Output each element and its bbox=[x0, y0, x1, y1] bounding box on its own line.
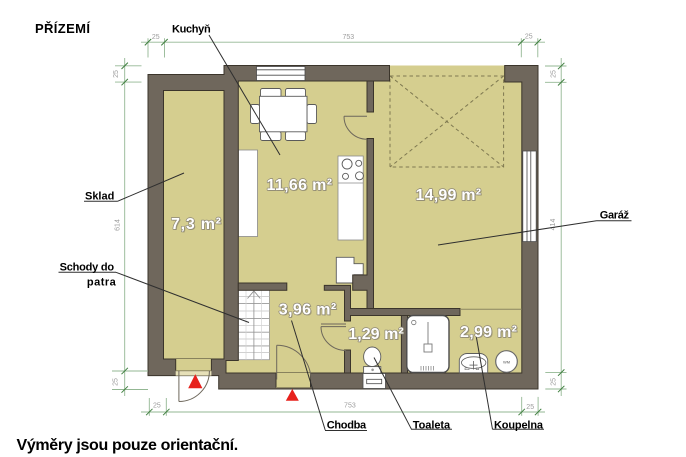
svg-text:1,29 m²: 1,29 m² bbox=[348, 326, 404, 343]
svg-text:7,3 m²: 7,3 m² bbox=[171, 216, 221, 233]
svg-text:Koupelna: Koupelna bbox=[494, 420, 544, 432]
svg-text:Schody do: Schody do bbox=[60, 262, 115, 274]
svg-text:Výměry jsou pouze orientační.: Výměry jsou pouze orientační. bbox=[17, 437, 239, 454]
svg-text:Kuchyň: Kuchyň bbox=[172, 24, 211, 36]
svg-text:patra: patra bbox=[87, 277, 117, 289]
svg-text:25: 25 bbox=[526, 404, 534, 411]
svg-text:2,99 m²: 2,99 m² bbox=[460, 324, 517, 341]
svg-text:25: 25 bbox=[153, 402, 161, 409]
svg-text:25: 25 bbox=[152, 34, 160, 41]
svg-text:25: 25 bbox=[551, 378, 558, 386]
svg-text:Garáž: Garáž bbox=[600, 210, 630, 222]
svg-text:753: 753 bbox=[342, 34, 354, 41]
svg-text:Sklad: Sklad bbox=[85, 191, 114, 203]
svg-text:WM: WM bbox=[503, 360, 511, 365]
svg-text:25: 25 bbox=[112, 378, 119, 386]
svg-text:Toaleta: Toaleta bbox=[413, 420, 451, 432]
svg-text:14,99 m²: 14,99 m² bbox=[416, 187, 482, 204]
svg-text:11,66 m²: 11,66 m² bbox=[267, 177, 333, 194]
svg-text:753: 753 bbox=[344, 402, 356, 409]
svg-text:PŘÍZEMÍ: PŘÍZEMÍ bbox=[35, 21, 90, 36]
svg-text:614: 614 bbox=[115, 219, 122, 231]
svg-text:25: 25 bbox=[113, 70, 120, 78]
svg-text:414: 414 bbox=[550, 219, 557, 231]
svg-text:25: 25 bbox=[551, 70, 558, 78]
svg-text:3,96 m²: 3,96 m² bbox=[279, 301, 336, 318]
svg-text:25: 25 bbox=[525, 33, 533, 40]
svg-text:Chodba: Chodba bbox=[327, 420, 367, 432]
